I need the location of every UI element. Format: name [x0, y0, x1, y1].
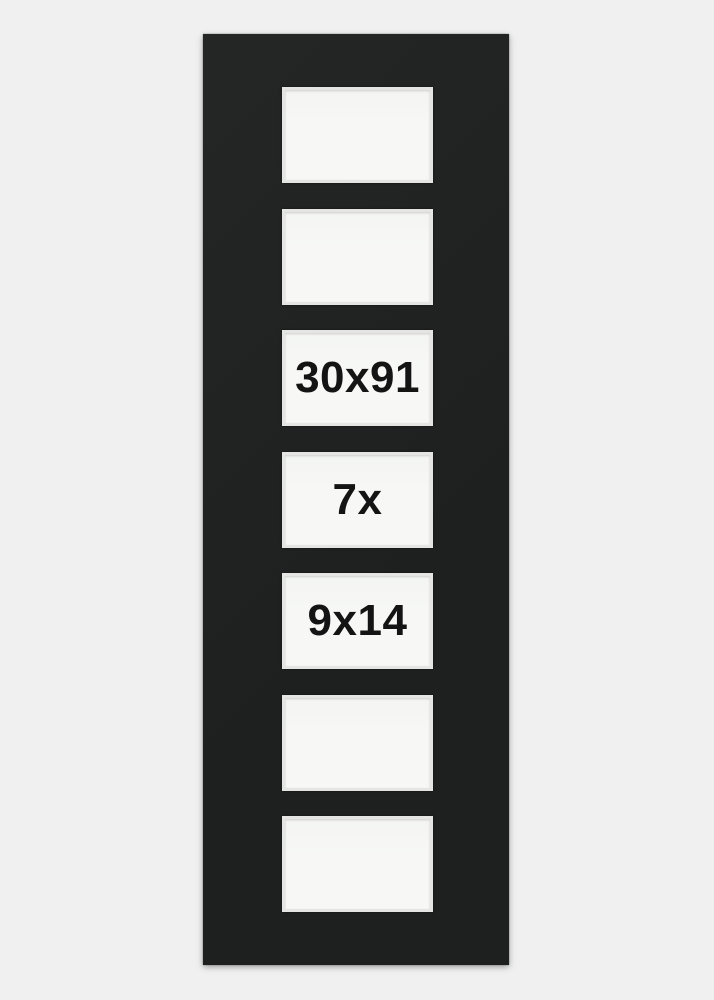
- passepartout-mat: 30x91 7x 9x14: [203, 34, 509, 965]
- mat-opening-1: [282, 87, 433, 183]
- mat-opening-3: 30x91: [282, 330, 433, 426]
- mat-opening-6: [282, 695, 433, 791]
- opening-label-5: 9x14: [308, 599, 408, 643]
- mat-opening-7: [282, 816, 433, 912]
- mat-opening-4: 7x: [282, 452, 433, 548]
- mat-opening-2: [282, 209, 433, 305]
- opening-label-4: 7x: [333, 478, 383, 522]
- opening-label-3: 30x91: [295, 356, 420, 400]
- product-image: 30x91 7x 9x14: [0, 0, 714, 1000]
- mat-opening-5: 9x14: [282, 573, 433, 669]
